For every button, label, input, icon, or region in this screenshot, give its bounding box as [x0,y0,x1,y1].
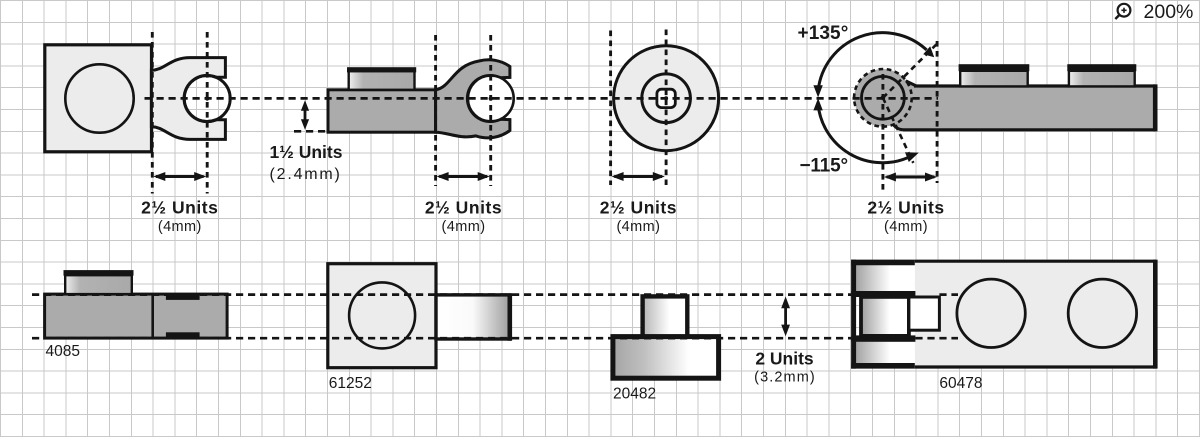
svg-text:+135°: +135° [798,23,849,44]
svg-text:2½ Units: 2½ Units [600,197,677,217]
svg-text:(4mm): (4mm) [442,219,486,235]
svg-text:2 Units: 2 Units [755,349,814,369]
svg-text:2½ Units: 2½ Units [141,197,218,217]
svg-text:60478: 60478 [939,375,982,392]
svg-text:(4mm): (4mm) [616,219,660,235]
svg-text:20482: 20482 [613,386,656,403]
svg-text:4085: 4085 [46,343,80,360]
svg-text:(2.4mm): (2.4mm) [270,166,342,183]
svg-text:(3.2mm): (3.2mm) [754,370,816,386]
svg-text:(4mm): (4mm) [884,219,928,235]
svg-text:2½ Units: 2½ Units [867,197,944,217]
svg-text:(4mm): (4mm) [158,219,202,235]
svg-text:−115°: −115° [800,156,848,177]
svg-text:1½ Units: 1½ Units [270,142,343,162]
svg-text:61252: 61252 [329,375,372,392]
svg-text:2½ Units: 2½ Units [425,197,502,217]
svg-text:200%: 200% [1144,1,1194,23]
